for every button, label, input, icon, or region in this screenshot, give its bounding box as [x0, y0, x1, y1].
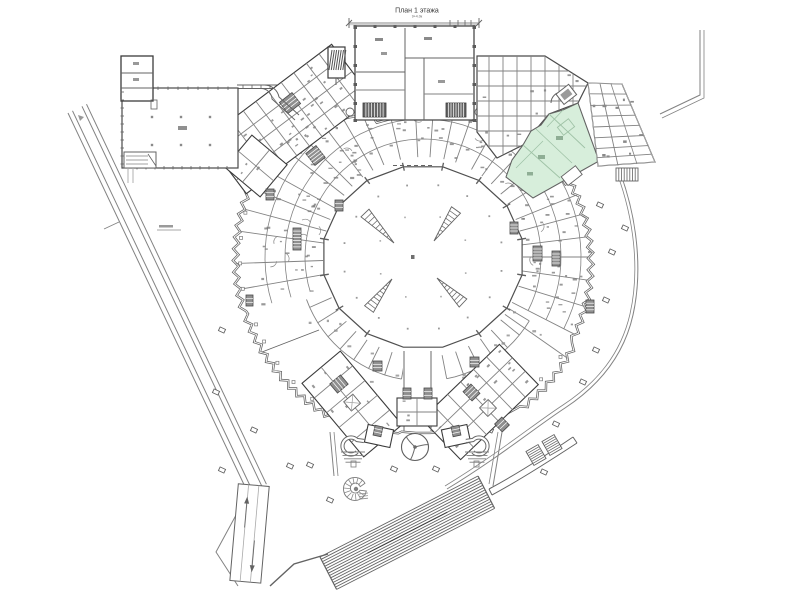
svg-text:9+4.0к: 9+4.0к	[412, 15, 423, 19]
svg-text:План 1 этажа: План 1 этажа	[395, 8, 439, 15]
